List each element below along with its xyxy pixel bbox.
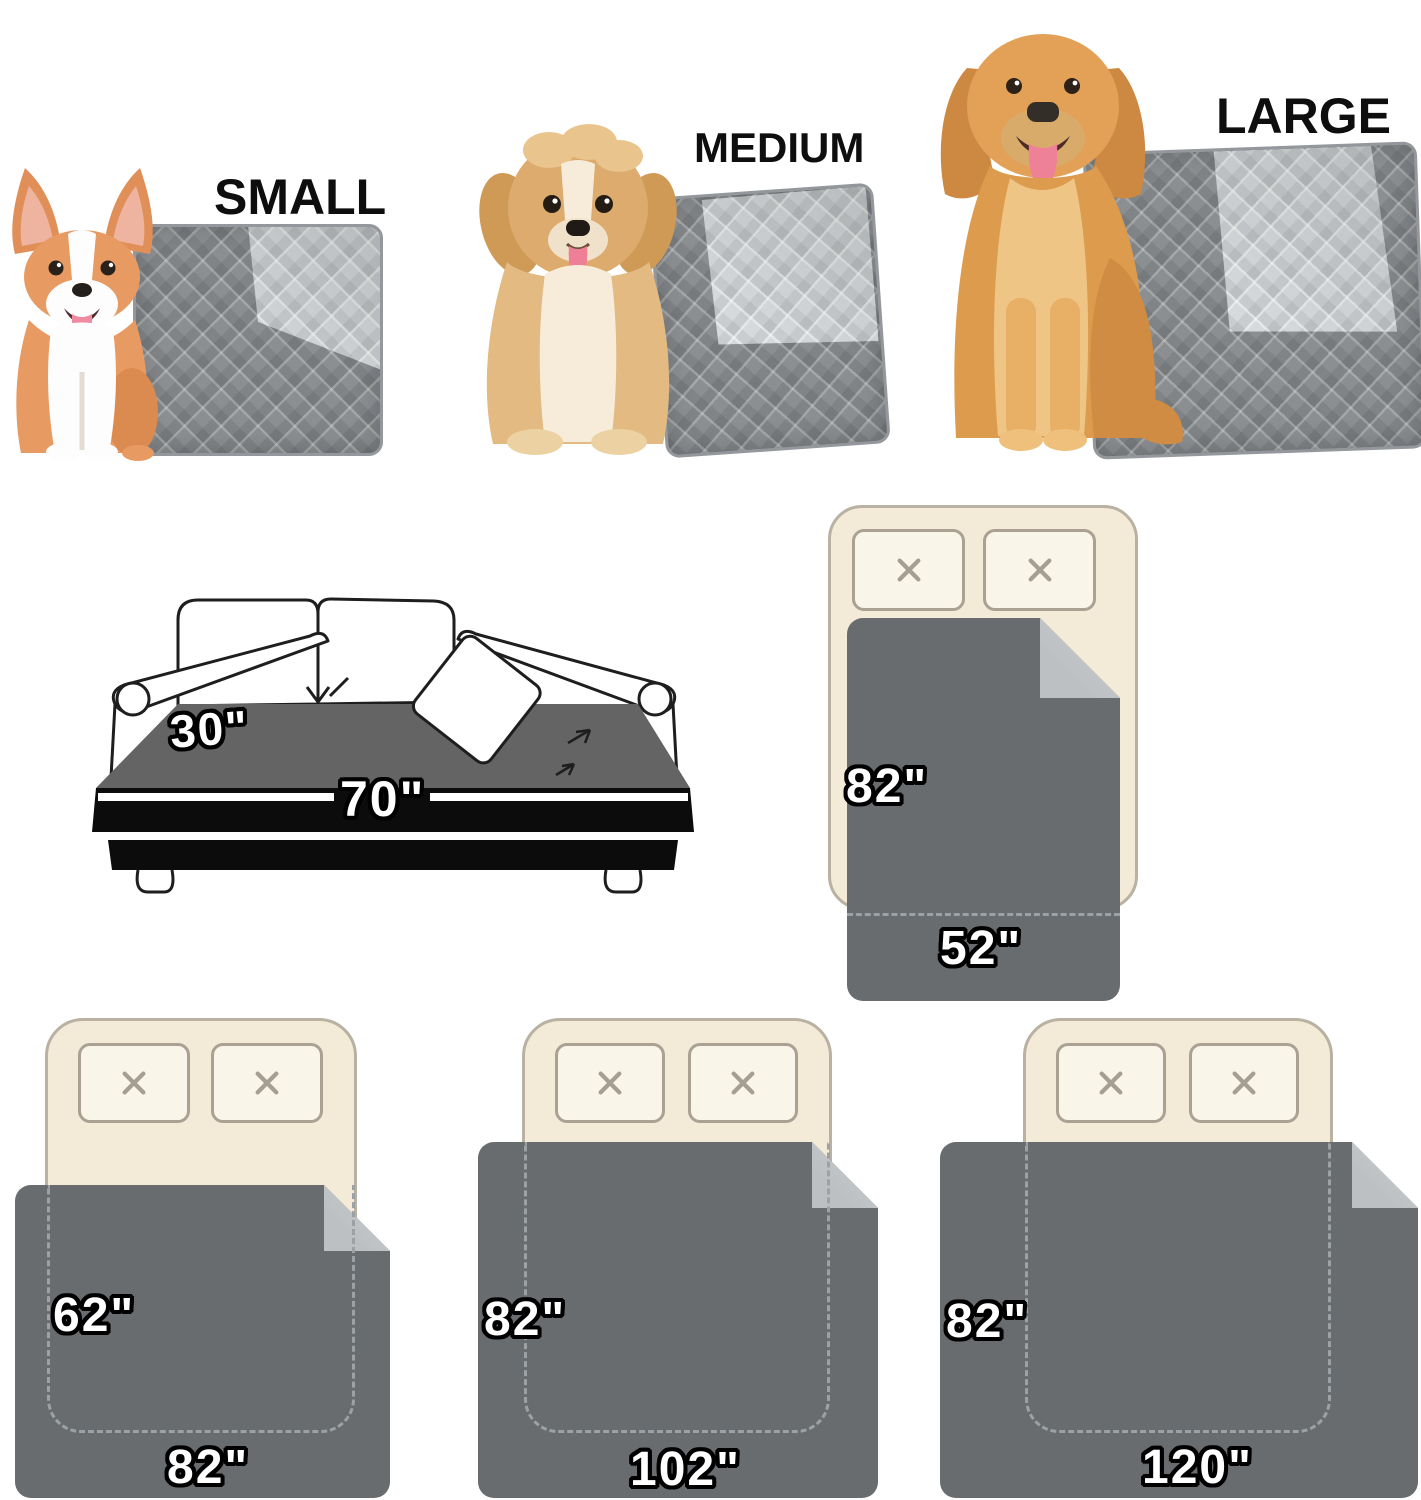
- blanket-width-label: 82": [167, 1444, 249, 1492]
- golden-retriever-photo: [897, 0, 1192, 463]
- bed-foot-dashed-line: [847, 913, 1120, 916]
- bed-hidden-edge-dashes: [524, 1142, 830, 1433]
- blanket-length-label: 82": [946, 1298, 1028, 1346]
- size-label-medium: MEDIUM: [694, 127, 864, 169]
- pillow-cross-icon: [1228, 1067, 1260, 1099]
- blanket-fold-corner: [1352, 1142, 1418, 1208]
- blanket-width-label: 52": [940, 925, 1022, 973]
- size-label-large: LARGE: [1216, 91, 1391, 141]
- blanket-length-label: 82": [846, 763, 928, 811]
- blanket-width-label: 120": [1142, 1444, 1253, 1492]
- pillow-cross-icon: [118, 1067, 150, 1099]
- pillow-left: [555, 1043, 665, 1123]
- pillow-cross-icon: [727, 1067, 759, 1099]
- pillow-right: [1189, 1043, 1299, 1123]
- pillow-cross-icon: [893, 554, 925, 586]
- pillow-left: [852, 529, 965, 611]
- pillow-cross-icon: [1095, 1067, 1127, 1099]
- small-pad-fold: [136, 227, 380, 453]
- pillow-right: [688, 1043, 798, 1123]
- bed-diagram-82x102: 82" 102": [470, 1018, 885, 1500]
- puppy-dog-photo: [468, 112, 690, 457]
- blanket-width-label: 102": [630, 1446, 741, 1494]
- blanket-length-label: 62": [53, 1292, 135, 1340]
- pillow-left: [1056, 1043, 1166, 1123]
- pillow-cross-icon: [1024, 554, 1056, 586]
- bed-hidden-edge-dashes: [1025, 1142, 1331, 1433]
- pillow-right: [211, 1043, 323, 1123]
- sofa-width-label: 70": [340, 774, 425, 824]
- pillow-cross-icon: [251, 1067, 283, 1099]
- bed-diagram-62x82: 62" 82": [15, 1018, 390, 1500]
- size-label-small: SMALL: [214, 172, 386, 222]
- bed-diagram-82x120: 82" 120": [940, 1018, 1421, 1500]
- corgi-dog-photo: [0, 162, 170, 462]
- sofa-depth-label: 30": [168, 703, 250, 754]
- blanket-fold-corner: [1040, 618, 1120, 698]
- pillow-cross-icon: [594, 1067, 626, 1099]
- size-chart-canvas: SMALL MEDIUM LARGE: [0, 0, 1421, 1500]
- blanket-length-label: 82": [484, 1296, 566, 1344]
- pillow-right: [983, 529, 1096, 611]
- pillow-left: [78, 1043, 190, 1123]
- bed-diagram-82x52: 82" 52": [820, 505, 1180, 1005]
- small-pad-photo: [133, 224, 383, 456]
